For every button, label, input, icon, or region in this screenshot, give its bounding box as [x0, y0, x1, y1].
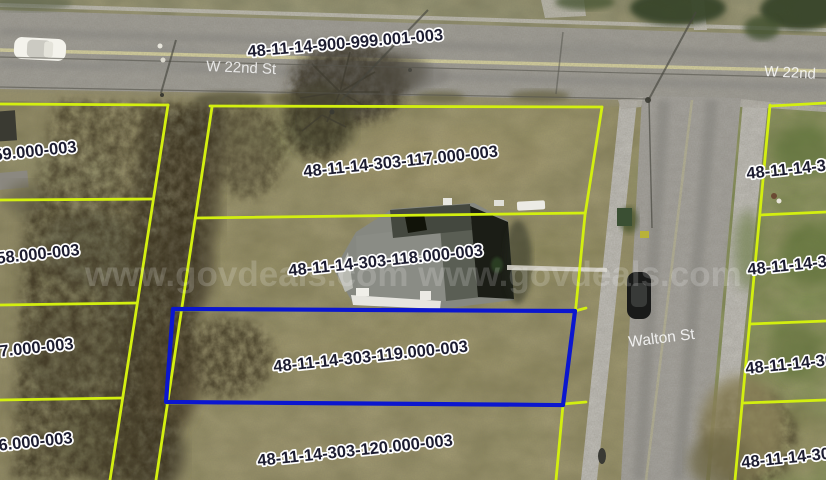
svg-text:W 22nd St: W 22nd St	[206, 58, 278, 78]
svg-text:W 22nd: W 22nd	[764, 63, 817, 83]
